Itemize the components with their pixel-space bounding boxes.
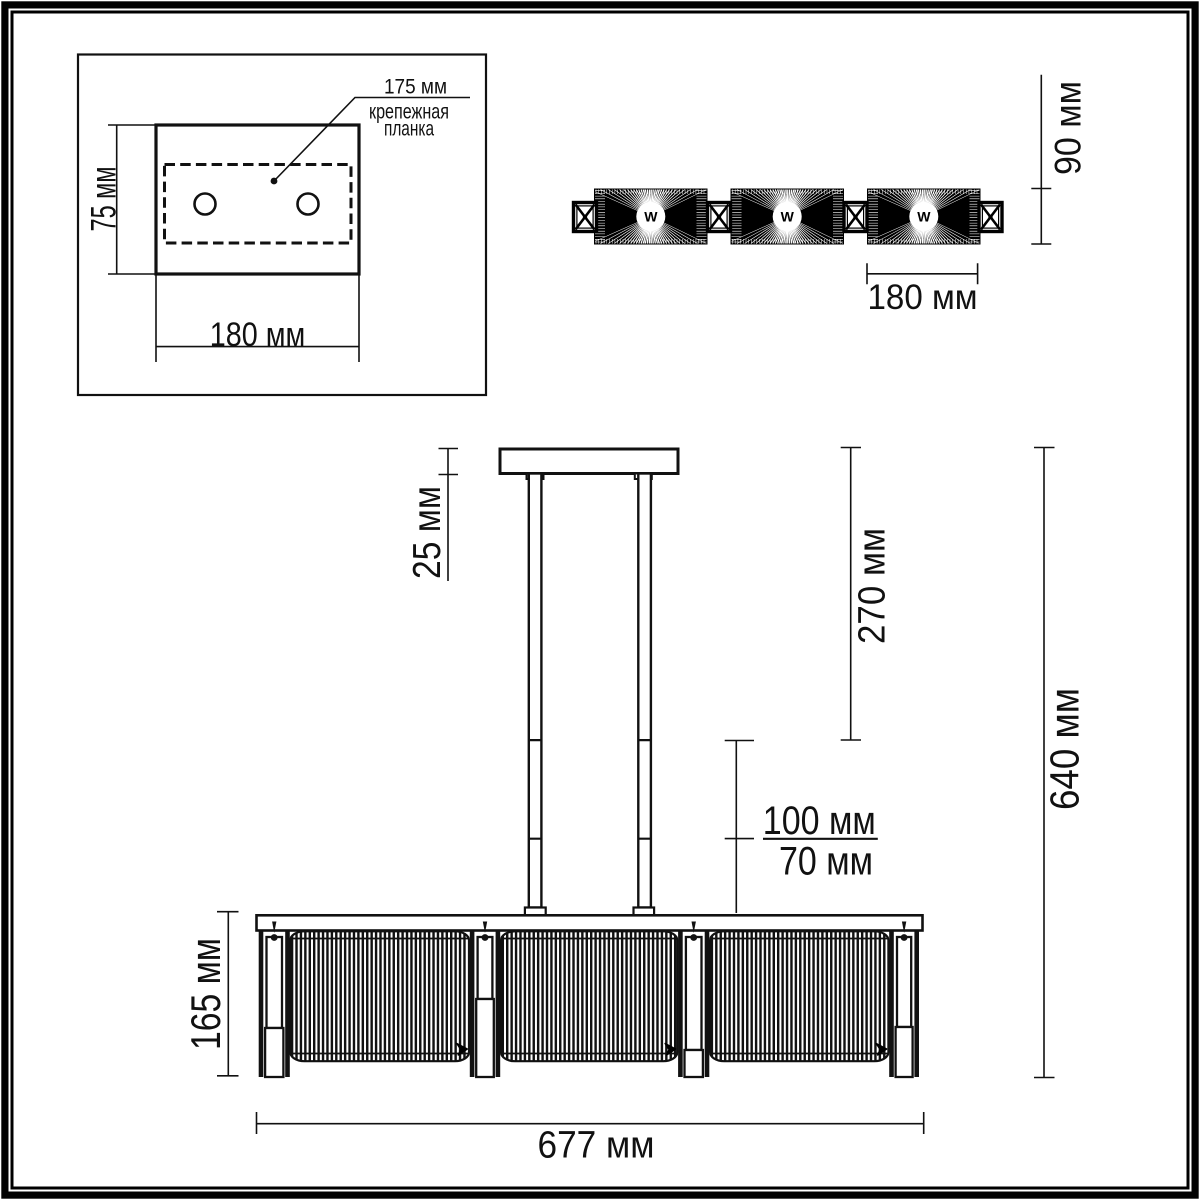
- svg-text:W: W: [644, 209, 658, 225]
- svg-text:90 мм: 90 мм: [1048, 81, 1089, 175]
- svg-text:100 мм: 100 мм: [763, 799, 876, 843]
- svg-text:W: W: [917, 209, 931, 225]
- svg-text:640 мм: 640 мм: [1041, 688, 1087, 810]
- svg-text:270 мм: 270 мм: [852, 528, 894, 644]
- svg-text:планка: планка: [384, 118, 434, 141]
- svg-text:165 мм: 165 мм: [182, 938, 229, 1050]
- svg-text:180 мм: 180 мм: [210, 316, 306, 354]
- svg-text:75 мм: 75 мм: [85, 167, 124, 232]
- svg-text:25 мм: 25 мм: [406, 486, 449, 579]
- svg-text:70 мм: 70 мм: [779, 840, 873, 884]
- svg-text:175 мм: 175 мм: [384, 76, 447, 99]
- svg-text:677 мм: 677 мм: [538, 1125, 655, 1167]
- svg-text:W: W: [781, 209, 795, 225]
- svg-text:180 мм: 180 мм: [868, 278, 978, 317]
